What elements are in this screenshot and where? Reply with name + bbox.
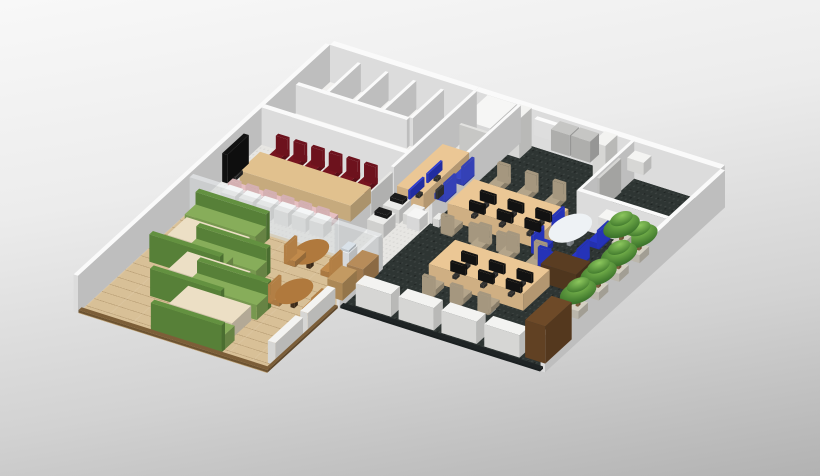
office-chair-back-side <box>490 225 492 245</box>
red-chair-back-side <box>287 137 289 157</box>
red-chair-back-side <box>322 148 324 168</box>
monitor-screen-side <box>521 282 523 293</box>
monitor-screen-side <box>493 274 495 285</box>
office-chair-back-side <box>536 173 538 193</box>
red-chair-back-side <box>358 160 360 180</box>
wall-phone-front <box>435 190 438 199</box>
wall-stall-corridor-side <box>407 117 410 148</box>
office-chair-back-side <box>508 164 510 184</box>
wall-west-cafeteria-front <box>74 274 78 313</box>
office-chair-back-side <box>461 286 463 306</box>
office-chair-back-side <box>564 182 566 202</box>
blue-chair-back-front <box>597 230 600 248</box>
monitor-screen-side <box>484 204 486 215</box>
monitor-screen-side <box>495 194 497 205</box>
office-chair-back-side <box>489 294 491 314</box>
monitor-screen-side <box>532 273 534 284</box>
monitor-screen-side <box>523 203 525 214</box>
canvas-background <box>0 0 820 476</box>
cafe-chair-back-front <box>268 284 271 302</box>
booth-bench-back-side <box>221 322 225 353</box>
glass-wall-corridor-south-side <box>379 234 383 271</box>
red-chair-back-side <box>340 154 342 174</box>
monitor-screen-side <box>512 213 514 224</box>
cafe-chair-back-front <box>284 245 287 263</box>
blue-screen-monitor-screen-front <box>408 190 410 200</box>
blue-screen-monitor-screen-front <box>426 173 428 183</box>
red-chair-back-side <box>375 165 377 185</box>
monitor-screen-side <box>550 212 552 223</box>
blue-task-chair-back-front <box>461 166 464 184</box>
booth-bench-back-side <box>267 245 271 276</box>
monitor-screen-side <box>504 264 506 275</box>
office-chair-back-side <box>433 277 435 297</box>
floorplan-3d-viewport[interactable] <box>0 0 820 476</box>
red-chair-back-side <box>305 143 307 163</box>
tv-display-front <box>222 153 227 183</box>
monitor-screen-side <box>465 265 467 276</box>
booth-bench-back-side <box>266 211 270 242</box>
tall-cabinet-front <box>525 320 545 364</box>
office-chair-back-side <box>452 216 454 236</box>
monitor-screen-side <box>476 255 478 266</box>
wall-stall-4-front <box>410 117 413 147</box>
monitor-screen-side <box>540 222 542 233</box>
office-chair-back-side <box>517 234 519 254</box>
